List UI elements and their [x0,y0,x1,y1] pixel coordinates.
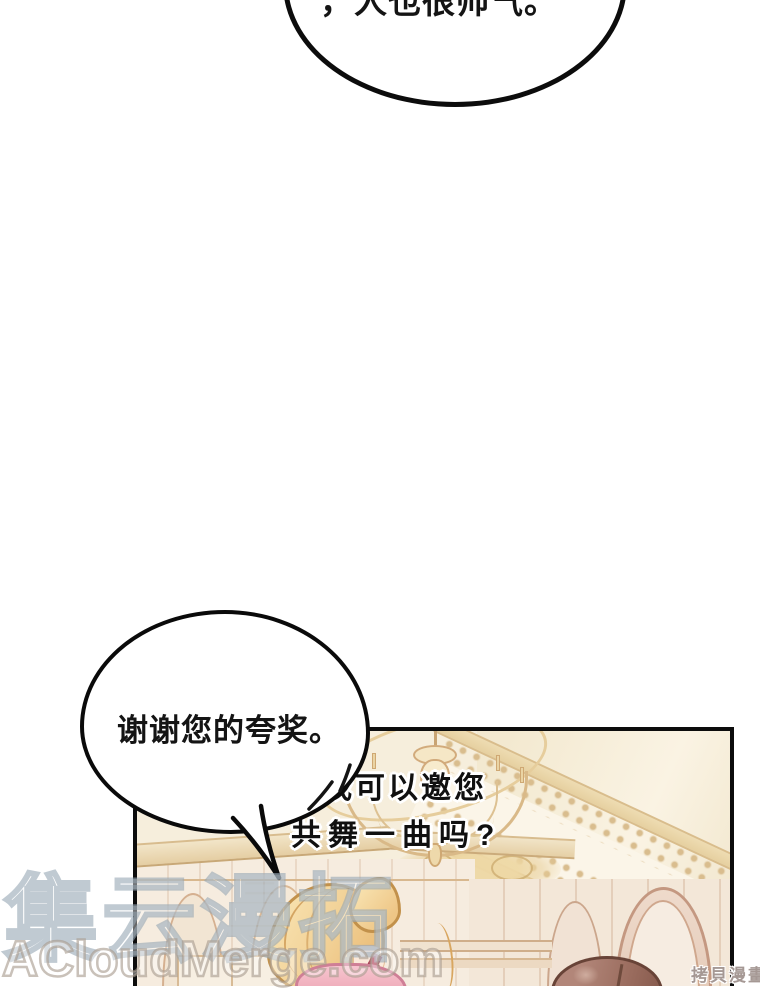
hair-parting-line [615,964,623,986]
watermark-brand-url: ACloudMerge.com [2,930,444,988]
speech-text-top: ，人也很帅气。 [320,0,620,23]
comic-page: ，人也很帅气。 [0,0,760,990]
corner-watermark: 拷貝漫畫 [691,961,760,986]
speech-text-thanks: 谢谢您的夸奖。 [117,705,341,750]
candle [520,767,524,783]
candle [496,755,500,771]
hair-highlight [573,965,599,985]
